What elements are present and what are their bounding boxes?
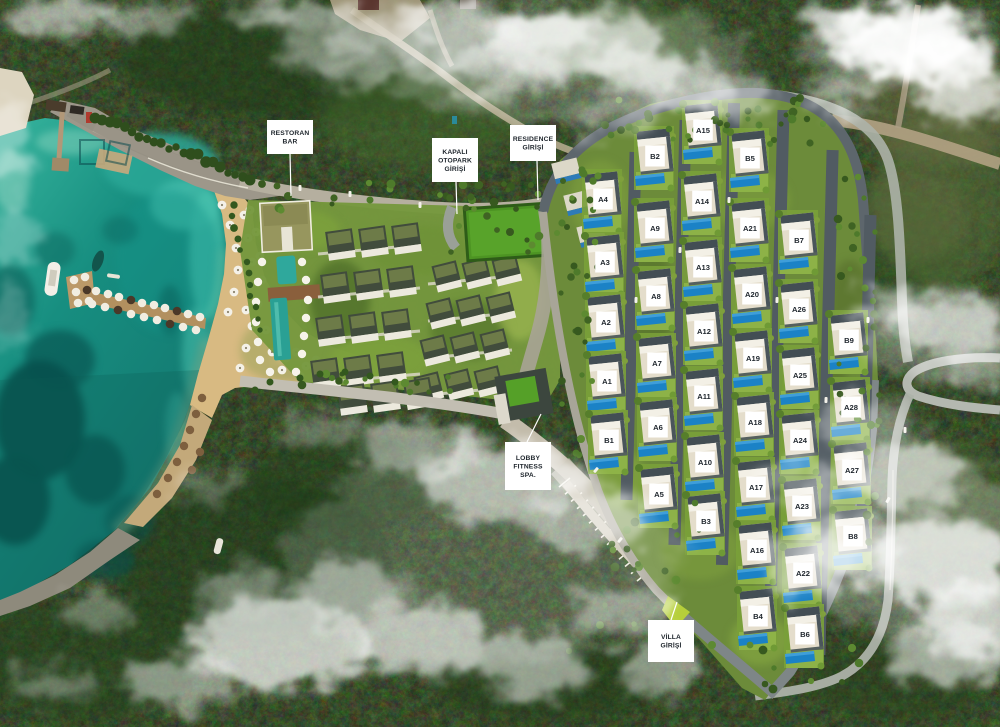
svg-text:A21: A21: [743, 224, 758, 233]
svg-text:B1: B1: [604, 436, 614, 445]
svg-text:A12: A12: [697, 327, 711, 336]
svg-text:A26: A26: [792, 305, 806, 314]
svg-text:A22: A22: [796, 569, 810, 578]
svg-text:SPA.: SPA.: [520, 472, 536, 479]
svg-text:BAR: BAR: [283, 139, 298, 146]
svg-text:LOBBY: LOBBY: [516, 455, 541, 462]
svg-text:B4: B4: [753, 612, 763, 621]
svg-text:A27: A27: [845, 466, 859, 475]
svg-text:VİLLA: VİLLA: [661, 632, 681, 641]
svg-text:B6: B6: [800, 630, 810, 639]
svg-text:RESIDENCE: RESIDENCE: [513, 136, 554, 143]
svg-text:GİRİŞİ: GİRİŞİ: [523, 143, 544, 152]
svg-text:B2: B2: [650, 152, 660, 161]
svg-text:A24: A24: [793, 436, 808, 445]
svg-text:A8: A8: [651, 292, 661, 301]
svg-text:KAPALI: KAPALI: [442, 149, 467, 156]
svg-text:A15: A15: [696, 126, 711, 135]
svg-text:A9: A9: [650, 224, 660, 233]
svg-text:GİRİŞİ: GİRİŞİ: [445, 164, 466, 173]
svg-text:A7: A7: [652, 359, 662, 368]
svg-text:A23: A23: [795, 502, 809, 511]
svg-text:B3: B3: [701, 517, 711, 526]
svg-text:A17: A17: [749, 483, 763, 492]
svg-text:A18: A18: [748, 418, 762, 427]
svg-text:A3: A3: [600, 258, 610, 267]
svg-text:B9: B9: [844, 336, 854, 345]
svg-text:A19: A19: [746, 354, 760, 363]
svg-text:A13: A13: [696, 263, 710, 272]
svg-text:GİRİŞİ: GİRİŞİ: [661, 641, 682, 650]
svg-text:B7: B7: [794, 236, 804, 245]
svg-text:A28: A28: [844, 403, 858, 412]
svg-text:FITNESS: FITNESS: [513, 463, 543, 470]
svg-text:A16: A16: [750, 546, 764, 555]
svg-text:A25: A25: [793, 371, 808, 380]
svg-text:B5: B5: [745, 154, 755, 163]
svg-text:OTOPARK: OTOPARK: [438, 157, 472, 164]
svg-text:RESTORAN: RESTORAN: [271, 130, 310, 137]
svg-text:A11: A11: [697, 392, 711, 401]
svg-text:A20: A20: [745, 290, 759, 299]
svg-text:A14: A14: [695, 197, 710, 206]
svg-text:B8: B8: [848, 532, 858, 541]
svg-text:A10: A10: [698, 458, 712, 467]
svg-text:A5: A5: [654, 490, 664, 499]
svg-text:A6: A6: [653, 423, 663, 432]
svg-text:A4: A4: [598, 195, 608, 204]
svg-text:A2: A2: [601, 318, 611, 327]
svg-text:A1: A1: [602, 377, 612, 386]
